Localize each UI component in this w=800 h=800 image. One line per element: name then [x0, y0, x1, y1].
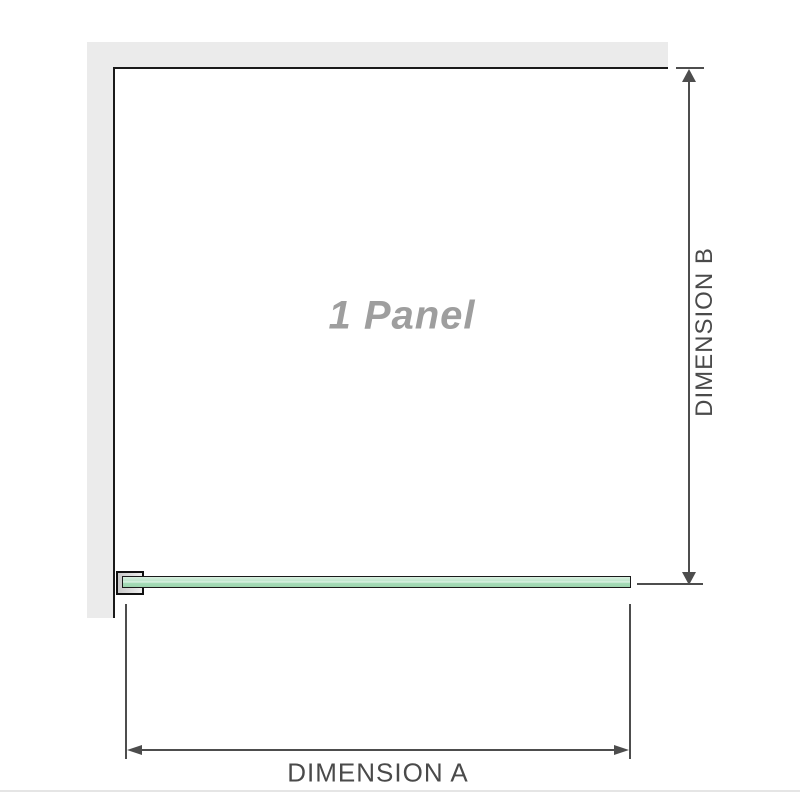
arrow-down-icon — [682, 572, 696, 585]
panel-outline-left — [113, 67, 115, 618]
shower-screen-dimension-diagram: 1 Panel DIMENSION B DIMENSION A — [0, 0, 800, 800]
arrow-up-icon — [682, 69, 696, 82]
glass-panel — [122, 576, 631, 588]
arrow-right-icon — [614, 745, 629, 755]
wall-left — [87, 42, 113, 618]
arrow-left-icon — [127, 745, 142, 755]
dimension-a-right-extension — [629, 604, 631, 759]
page-divider — [0, 790, 800, 792]
panel-count-label: 1 Panel — [328, 294, 475, 339]
dimension-b-label: DIMENSION B — [691, 247, 719, 417]
panel-outline-top — [113, 67, 668, 69]
dimension-b-line — [688, 76, 690, 578]
dimension-a-left-extension — [125, 604, 127, 759]
wall-top — [87, 42, 668, 67]
dimension-a-label: DIMENSION A — [287, 758, 468, 789]
dimension-a-line — [138, 749, 618, 751]
